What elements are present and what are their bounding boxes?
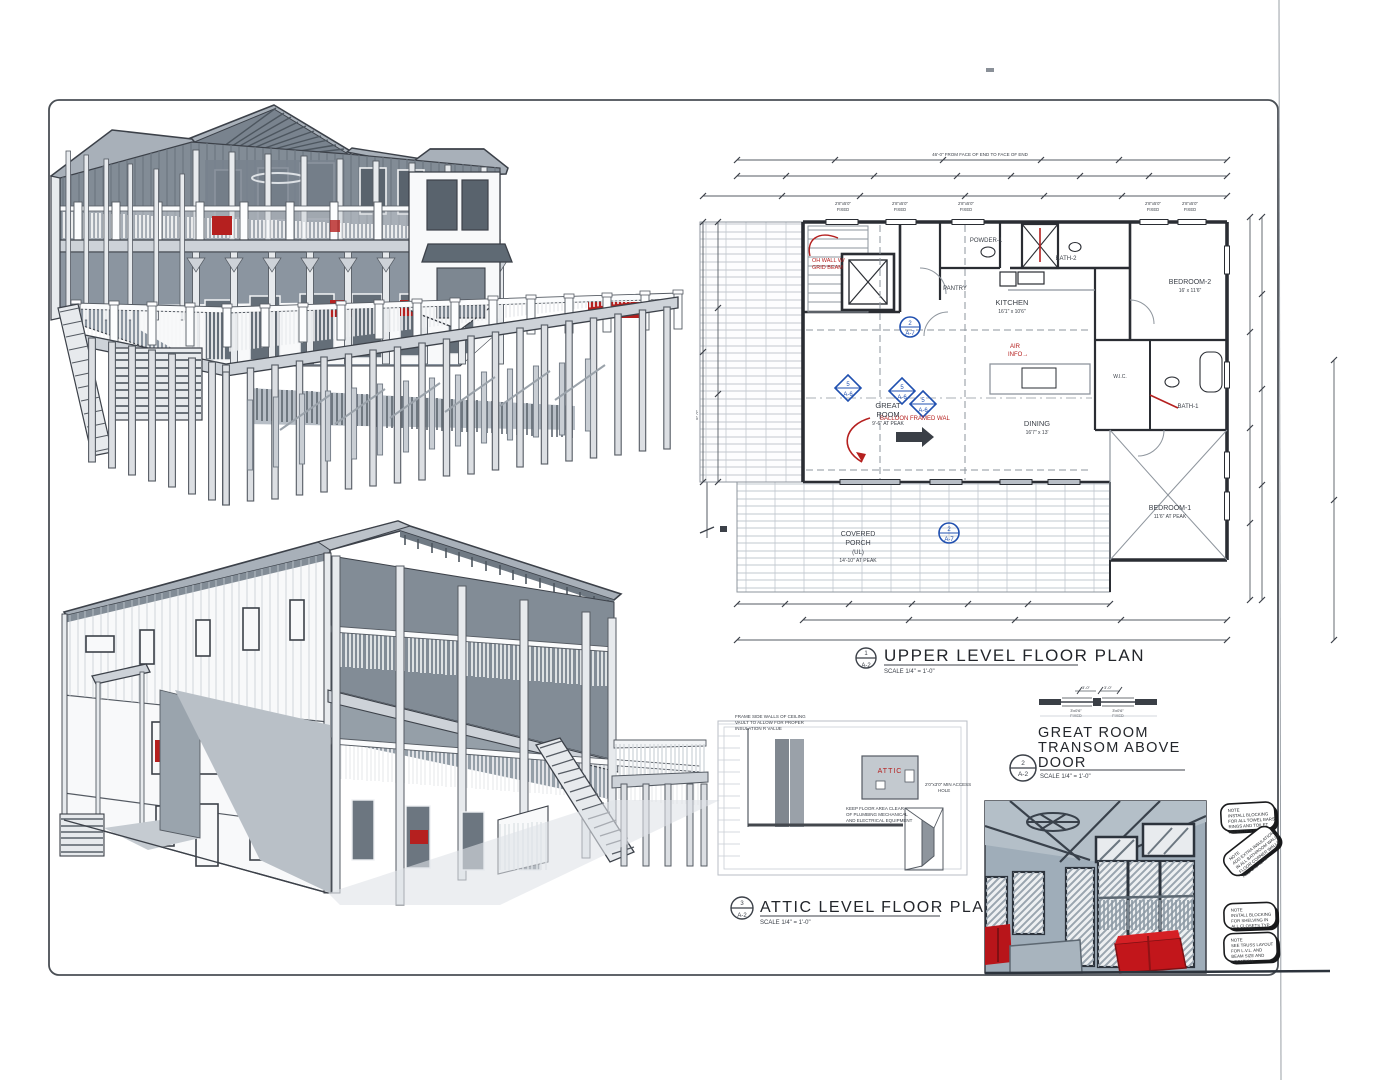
- svg-text:SCALE 1/4" = 1'-0": SCALE 1/4" = 1'-0": [760, 920, 811, 926]
- svg-text:FIXED: FIXED: [960, 207, 972, 212]
- svg-text:46'-0" FROM FACE OF END TO FAC: 46'-0" FROM FACE OF END TO FACE OF END: [932, 152, 1029, 157]
- svg-text:11'6" AT PEAK: 11'6" AT PEAK: [1154, 514, 1187, 520]
- svg-text:16' x 11'6": 16' x 11'6": [1179, 288, 1202, 294]
- svg-text:INFO→: INFO→: [1008, 352, 1028, 358]
- svg-text:3'-0": 3'-0": [1104, 685, 1113, 690]
- svg-text:A-6: A-6: [843, 392, 853, 398]
- svg-text:2'8"x5'0": 2'8"x5'0": [892, 201, 908, 206]
- svg-text:OH WALL W/: OH WALL W/: [812, 258, 845, 264]
- svg-text:2'8"x5'0": 2'8"x5'0": [1145, 201, 1161, 206]
- svg-text:COVERED: COVERED: [841, 531, 876, 538]
- svg-text:FIXED: FIXED: [837, 207, 849, 212]
- svg-text:9'-6" AT PEAK: 9'-6" AT PEAK: [872, 421, 904, 427]
- svg-text:BATH-1: BATH-1: [1178, 404, 1200, 410]
- svg-text:BEDROOM-1: BEDROOM-1: [1149, 505, 1192, 512]
- svg-text:16'1" x 10'6": 16'1" x 10'6": [998, 309, 1026, 315]
- svg-text:16'7" x 13': 16'7" x 13': [1026, 430, 1049, 436]
- svg-text:UPPER LEVEL FLOOR PLAN: UPPER LEVEL FLOOR PLAN: [884, 646, 1145, 665]
- svg-text:TRANSOM ABOVE: TRANSOM ABOVE: [1038, 740, 1181, 756]
- svg-text:3'-0": 3'-0": [1082, 685, 1091, 690]
- svg-text:W.I.C.: W.I.C.: [1113, 374, 1127, 380]
- svg-text:A-2: A-2: [737, 913, 747, 919]
- svg-text:INSULATION R VALUE: INSULATION R VALUE: [735, 726, 782, 731]
- svg-text:DINING: DINING: [1024, 419, 1050, 428]
- svg-text:A-7: A-7: [905, 331, 915, 337]
- svg-text:LOCATION: LOCATION: [1231, 959, 1253, 965]
- svg-text:ATTIC: ATTIC: [878, 768, 903, 775]
- svg-text:FIXED: FIXED: [1112, 713, 1124, 718]
- svg-text:2'8"x5'0": 2'8"x5'0": [1182, 201, 1198, 206]
- svg-text:BEDROOM-2: BEDROOM-2: [1169, 279, 1212, 286]
- svg-text:FIXED: FIXED: [894, 207, 906, 212]
- svg-text:KITCHEN: KITCHEN: [996, 298, 1029, 307]
- svg-text:FIXED: FIXED: [1184, 207, 1196, 212]
- svg-text:FIXED: FIXED: [1070, 713, 1082, 718]
- svg-text:(UL): (UL): [852, 550, 864, 556]
- svg-text:FRAME SIDE WALLS OF CEILING: FRAME SIDE WALLS OF CEILING: [735, 714, 806, 719]
- svg-text:POWDER-1: POWDER-1: [970, 238, 1003, 244]
- svg-text:SCALE 1/4" = 1'-0": SCALE 1/4" = 1'-0": [1040, 774, 1091, 780]
- svg-text:GREAT: GREAT: [875, 401, 901, 410]
- svg-text:ATTIC LEVEL FLOOR PLAN: ATTIC LEVEL FLOOR PLAN: [760, 899, 998, 916]
- svg-text:2'8"x5'0": 2'8"x5'0": [835, 201, 851, 206]
- svg-text:A-6: A-6: [918, 408, 928, 414]
- svg-text:FIXED: FIXED: [1147, 207, 1159, 212]
- svg-text:SCALE 1/4" = 1'-0": SCALE 1/4" = 1'-0": [884, 669, 935, 675]
- svg-text:AND ELECTRICAL EQUIPMENT: AND ELECTRICAL EQUIPMENT: [846, 818, 913, 823]
- svg-text:GREAT ROOM: GREAT ROOM: [1038, 725, 1149, 741]
- svg-text:BATH-2: BATH-2: [1056, 256, 1078, 262]
- svg-text:GRID BEAM: GRID BEAM: [812, 265, 843, 271]
- svg-text:PANTRY: PANTRY: [943, 286, 967, 292]
- svg-text:DOOR: DOOR: [1038, 755, 1087, 771]
- svg-text:KEEP FLOOR AREA CLEAR: KEEP FLOOR AREA CLEAR: [846, 806, 905, 811]
- svg-text:2'0"x3'0" MIN ACCESS: 2'0"x3'0" MIN ACCESS: [925, 782, 971, 787]
- svg-text:AIR: AIR: [1010, 344, 1021, 350]
- svg-text:HOLE: HOLE: [938, 788, 950, 793]
- svg-text:ROOM: ROOM: [876, 410, 899, 419]
- svg-text:14'-10" AT PEAK: 14'-10" AT PEAK: [839, 558, 877, 564]
- svg-text:A-2: A-2: [1018, 771, 1029, 778]
- svg-text:2: 2: [1021, 760, 1025, 767]
- svg-text:A-2: A-2: [861, 663, 871, 669]
- svg-text:VAULT TO ALLOW FOR PROPER: VAULT TO ALLOW FOR PROPER: [735, 720, 805, 725]
- svg-text:2'8"x5'0": 2'8"x5'0": [958, 201, 974, 206]
- svg-text:PORCH: PORCH: [845, 540, 870, 547]
- svg-text:OF PLUMBING MECHANICAL: OF PLUMBING MECHANICAL: [846, 812, 908, 817]
- svg-text:A-7: A-7: [944, 537, 954, 543]
